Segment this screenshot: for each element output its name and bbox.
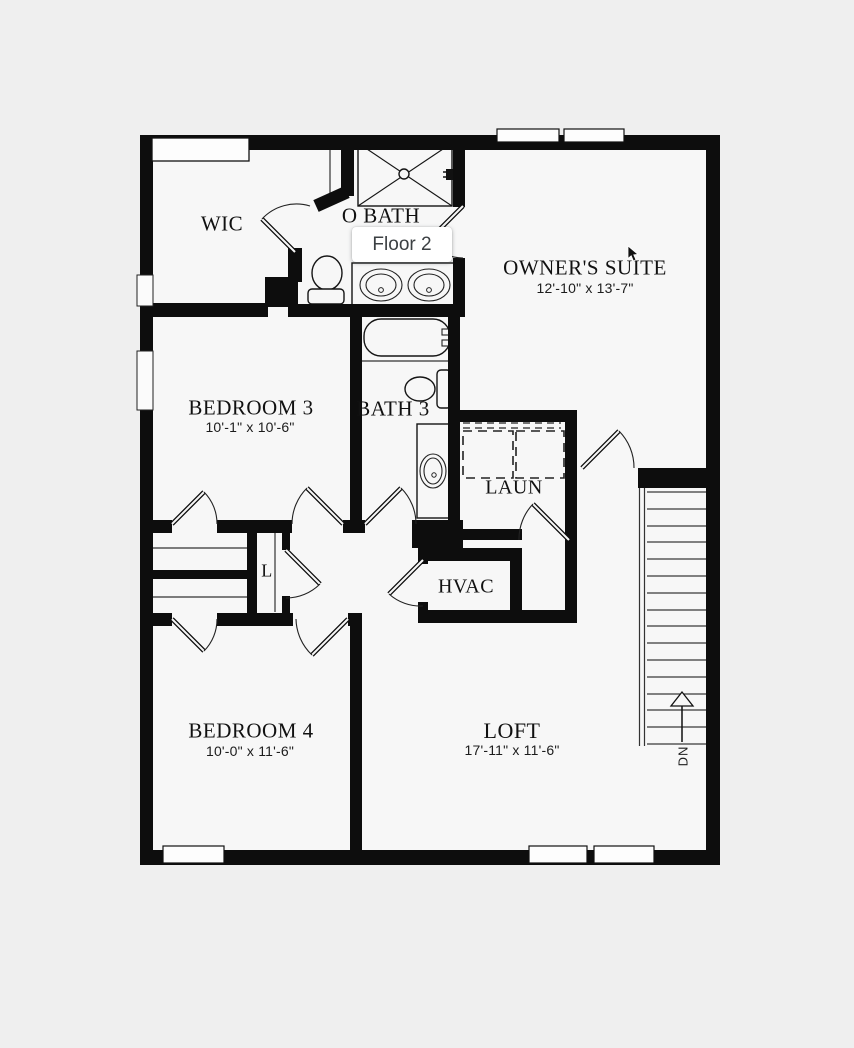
window-bedroom4 <box>163 846 224 863</box>
window-suite-1 <box>497 129 559 142</box>
floor-selector-label: Floor 2 <box>372 234 431 256</box>
window-loft-2 <box>594 846 654 863</box>
vanity-bath-3 <box>417 424 450 518</box>
room-label-o-bath: O BATH <box>342 204 420 229</box>
room-label-owners-suite: OWNER'S SUITE <box>503 256 667 281</box>
room-label-loft: LOFT <box>484 718 541 744</box>
floor-plan-viewer: WIC O BATH OWNER'S SUITE 12'-10" x 13'-7… <box>0 0 854 1048</box>
floor-plan-drawing <box>0 0 854 1048</box>
bathtub <box>360 319 451 361</box>
shower <box>358 143 453 206</box>
room-label-linen-closet: L <box>261 561 273 582</box>
room-label-bedroom-3: BEDROOM 3 <box>188 396 313 421</box>
stairs-dn-label: DN <box>676 746 691 767</box>
room-label-bedroom-4: BEDROOM 4 <box>188 719 313 744</box>
room-label-bath-3: BATH 3 <box>356 397 430 422</box>
room-dims-loft: 17'-11" x 11'-6" <box>464 742 559 758</box>
double-vanity <box>352 263 457 305</box>
mouse-cursor-icon <box>627 245 641 263</box>
window-bedroom3 <box>137 351 153 410</box>
room-label-laundry: LAUN <box>485 477 543 500</box>
window-wic <box>152 138 249 161</box>
room-label-wic: WIC <box>201 212 243 237</box>
room-label-hvac: HVAC <box>438 576 494 599</box>
floor-selector-button[interactable]: Floor 2 <box>352 227 452 262</box>
window-left-1 <box>137 275 153 306</box>
room-dims-bedroom-3: 10'-1" x 10'-6" <box>205 419 294 435</box>
room-dims-owners-suite: 12'-10" x 13'-7" <box>536 280 633 296</box>
window-suite-2 <box>564 129 624 142</box>
window-loft-1 <box>529 846 587 863</box>
room-dims-bedroom-4: 10'-0" x 11'-6" <box>206 743 294 759</box>
